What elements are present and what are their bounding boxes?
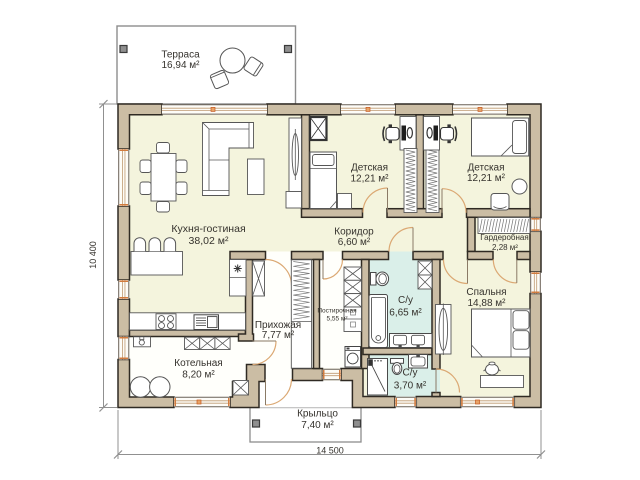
svg-text:12,21 м²: 12,21 м² [467,173,506,184]
svg-text:Котельная: Котельная [174,358,222,369]
svg-text:Гардеробная: Гардеробная [480,233,528,242]
svg-text:3,70 м²: 3,70 м² [394,381,427,392]
svg-text:7,40 м²: 7,40 м² [301,420,334,431]
svg-text:7,77 м²: 7,77 м² [262,330,295,341]
svg-text:14,88 м²: 14,88 м² [467,298,506,309]
svg-text:8,20 м²: 8,20 м² [182,370,215,381]
svg-text:С/у: С/у [398,295,413,306]
svg-text:Коридор: Коридор [334,227,374,238]
svg-text:С/у: С/у [403,368,418,379]
svg-text:Постирочная: Постирочная [317,308,357,315]
svg-text:6,65 м²: 6,65 м² [389,308,422,319]
svg-text:Терраса: Терраса [161,50,200,61]
svg-text:Кухня-гостиная: Кухня-гостиная [171,223,245,235]
svg-text:38,02 м²: 38,02 м² [189,235,229,247]
svg-text:16,94 м²: 16,94 м² [161,60,200,71]
svg-text:Спальня: Спальня [466,287,506,298]
svg-text:6,60 м²: 6,60 м² [338,237,371,248]
svg-text:Детская: Детская [467,163,504,174]
svg-text:5,55 м²: 5,55 м² [326,316,348,323]
svg-text:Детская: Детская [351,163,388,174]
svg-text:10 400: 10 400 [88,241,98,269]
svg-text:2,28 м²: 2,28 м² [492,243,518,252]
svg-text:14 500: 14 500 [316,446,344,456]
svg-text:12,21 м²: 12,21 м² [350,174,389,185]
svg-text:Крыльцо: Крыльцо [297,409,338,420]
